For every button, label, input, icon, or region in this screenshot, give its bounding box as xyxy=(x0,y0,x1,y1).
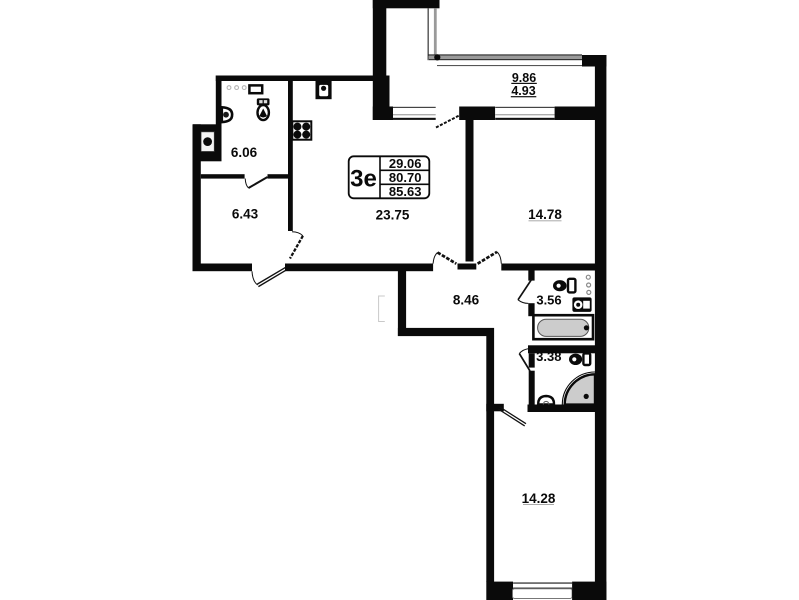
svg-text:14.78: 14.78 xyxy=(528,207,562,222)
svg-text:85.63: 85.63 xyxy=(389,184,422,199)
svg-text:3.38: 3.38 xyxy=(536,349,561,364)
svg-text:6.06: 6.06 xyxy=(231,145,258,160)
svg-text:29.06: 29.06 xyxy=(389,156,422,171)
svg-text:8.46: 8.46 xyxy=(453,292,480,307)
svg-text:9.86: 9.86 xyxy=(512,71,536,85)
svg-text:3.56: 3.56 xyxy=(536,293,561,308)
svg-text:6.43: 6.43 xyxy=(232,207,259,222)
svg-text:80.70: 80.70 xyxy=(389,170,422,185)
svg-text:3е: 3е xyxy=(350,166,377,193)
svg-text:23.75: 23.75 xyxy=(376,208,410,223)
svg-text:4.93: 4.93 xyxy=(511,84,535,98)
svg-text:14.28: 14.28 xyxy=(522,491,556,506)
